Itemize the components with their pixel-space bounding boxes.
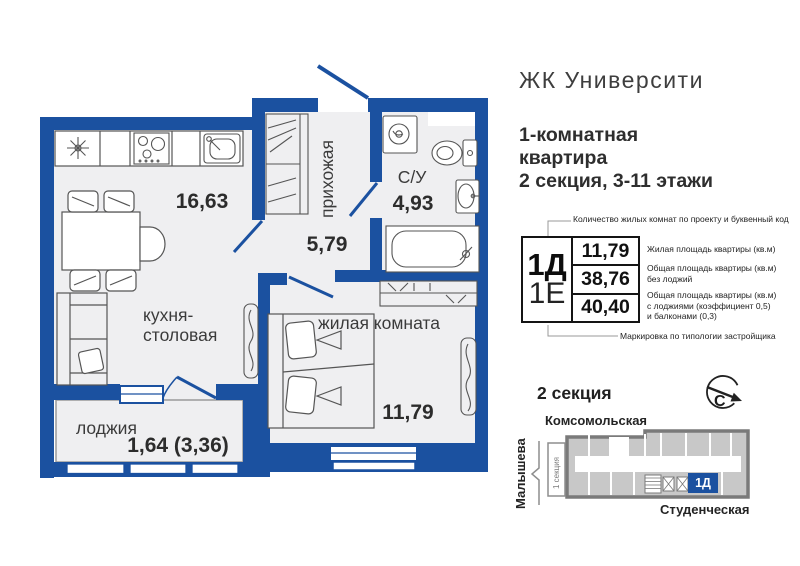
typology-code: 1Е <box>529 279 566 309</box>
spec-table: 1Д 1Е 11,79 38,76 40,40 <box>521 236 640 323</box>
highlighted-unit-label: 1Д <box>688 473 718 493</box>
washing-machine-icon <box>383 116 417 153</box>
sofa-pillow <box>78 348 104 374</box>
spec-codes-cell: 1Д 1Е <box>523 238 573 321</box>
complex-title: ЖК Университи <box>519 67 704 94</box>
note-total-with-loggia-line1: Общая площадь квартиры (кв.м) <box>647 290 776 301</box>
loggia-window <box>130 464 186 474</box>
compass-north-letter: С <box>714 393 726 411</box>
kitchen-area-value: 16,63 <box>176 190 229 214</box>
apartment-subtitle-line2: квартира <box>519 147 607 170</box>
kitchen-sink-icon <box>204 134 240 163</box>
living-room-area-value: 11,79 <box>382 401 433 425</box>
living-area-cell: 11,79 <box>573 238 638 264</box>
living-wardrobe <box>380 281 477 306</box>
floorplan-sheet: 16,63 кухня- столовая прихожая 5,79 С/У … <box>0 0 800 566</box>
bathroom-area-value: 4,93 <box>393 192 434 216</box>
street-pointer <box>532 441 539 505</box>
chair <box>140 227 165 261</box>
bathroom-label: С/У <box>398 167 427 188</box>
loggia-area-value: 1,64 (3,36) <box>127 434 229 458</box>
entrance-door <box>318 66 368 98</box>
vent-niche <box>428 112 475 126</box>
hallway-area-value: 5,79 <box>307 233 348 257</box>
total-area-cell: 38,76 <box>573 264 638 292</box>
loggia-window <box>192 464 238 474</box>
note-room-count-code: Количество жилых комнат по проекту и бук… <box>573 214 789 225</box>
section-title: 2 секция <box>537 383 612 404</box>
street-studencheskaya: Студенческая <box>660 502 749 517</box>
bathtub-icon <box>386 226 479 272</box>
note-total-with-loggia-line2: с лоджиями (коэффициент 0,5) <box>647 301 776 312</box>
cooktop-icon <box>134 133 169 164</box>
apartment-subtitle-line1: 1-комнатная <box>519 124 638 147</box>
kitchen-label-line1: кухня- <box>143 305 193 326</box>
building-minimap <box>532 431 748 505</box>
loggia-window <box>67 464 124 474</box>
note-typology: Маркировка по типологии застройщика <box>620 331 776 342</box>
note-total-area-line1: Общая площадь квартиры (кв.м) <box>647 263 776 274</box>
total-area-with-loggia-cell: 40,40 <box>573 293 638 321</box>
pillow <box>285 376 317 415</box>
note-total-with-loggia: Общая площадь квартиры (кв.м) с лоджиями… <box>647 290 776 322</box>
street-komsomolskaya: Комсомольская <box>545 413 647 428</box>
pillow <box>285 321 317 360</box>
hallway-label: прихожая <box>317 140 338 218</box>
note-total-area-line2: без лоджий <box>647 274 776 285</box>
toilet-icon <box>432 140 477 166</box>
radiator <box>244 304 258 378</box>
living-room-label: жилая комната <box>318 313 440 334</box>
room-count-code: 1Д <box>527 250 566 279</box>
section1-label: 1 секция <box>552 457 561 489</box>
hallway-wardrobe <box>266 114 308 214</box>
note-total-area: Общая площадь квартиры (кв.м) без лоджий <box>647 263 776 284</box>
note-living-area: Жилая площадь квартиры (кв.м) <box>647 244 775 255</box>
sofa <box>57 293 107 385</box>
street-malysheva: Малышева <box>513 438 528 509</box>
kitchen-label-line2: столовая <box>143 325 217 346</box>
apartment-subtitle-line3: 2 секция, 3-11 этажи <box>519 170 713 193</box>
radiator <box>461 338 476 415</box>
note-total-with-loggia-line3: и балконами (0,3) <box>647 311 776 322</box>
bathroom-sink-icon <box>456 180 479 213</box>
